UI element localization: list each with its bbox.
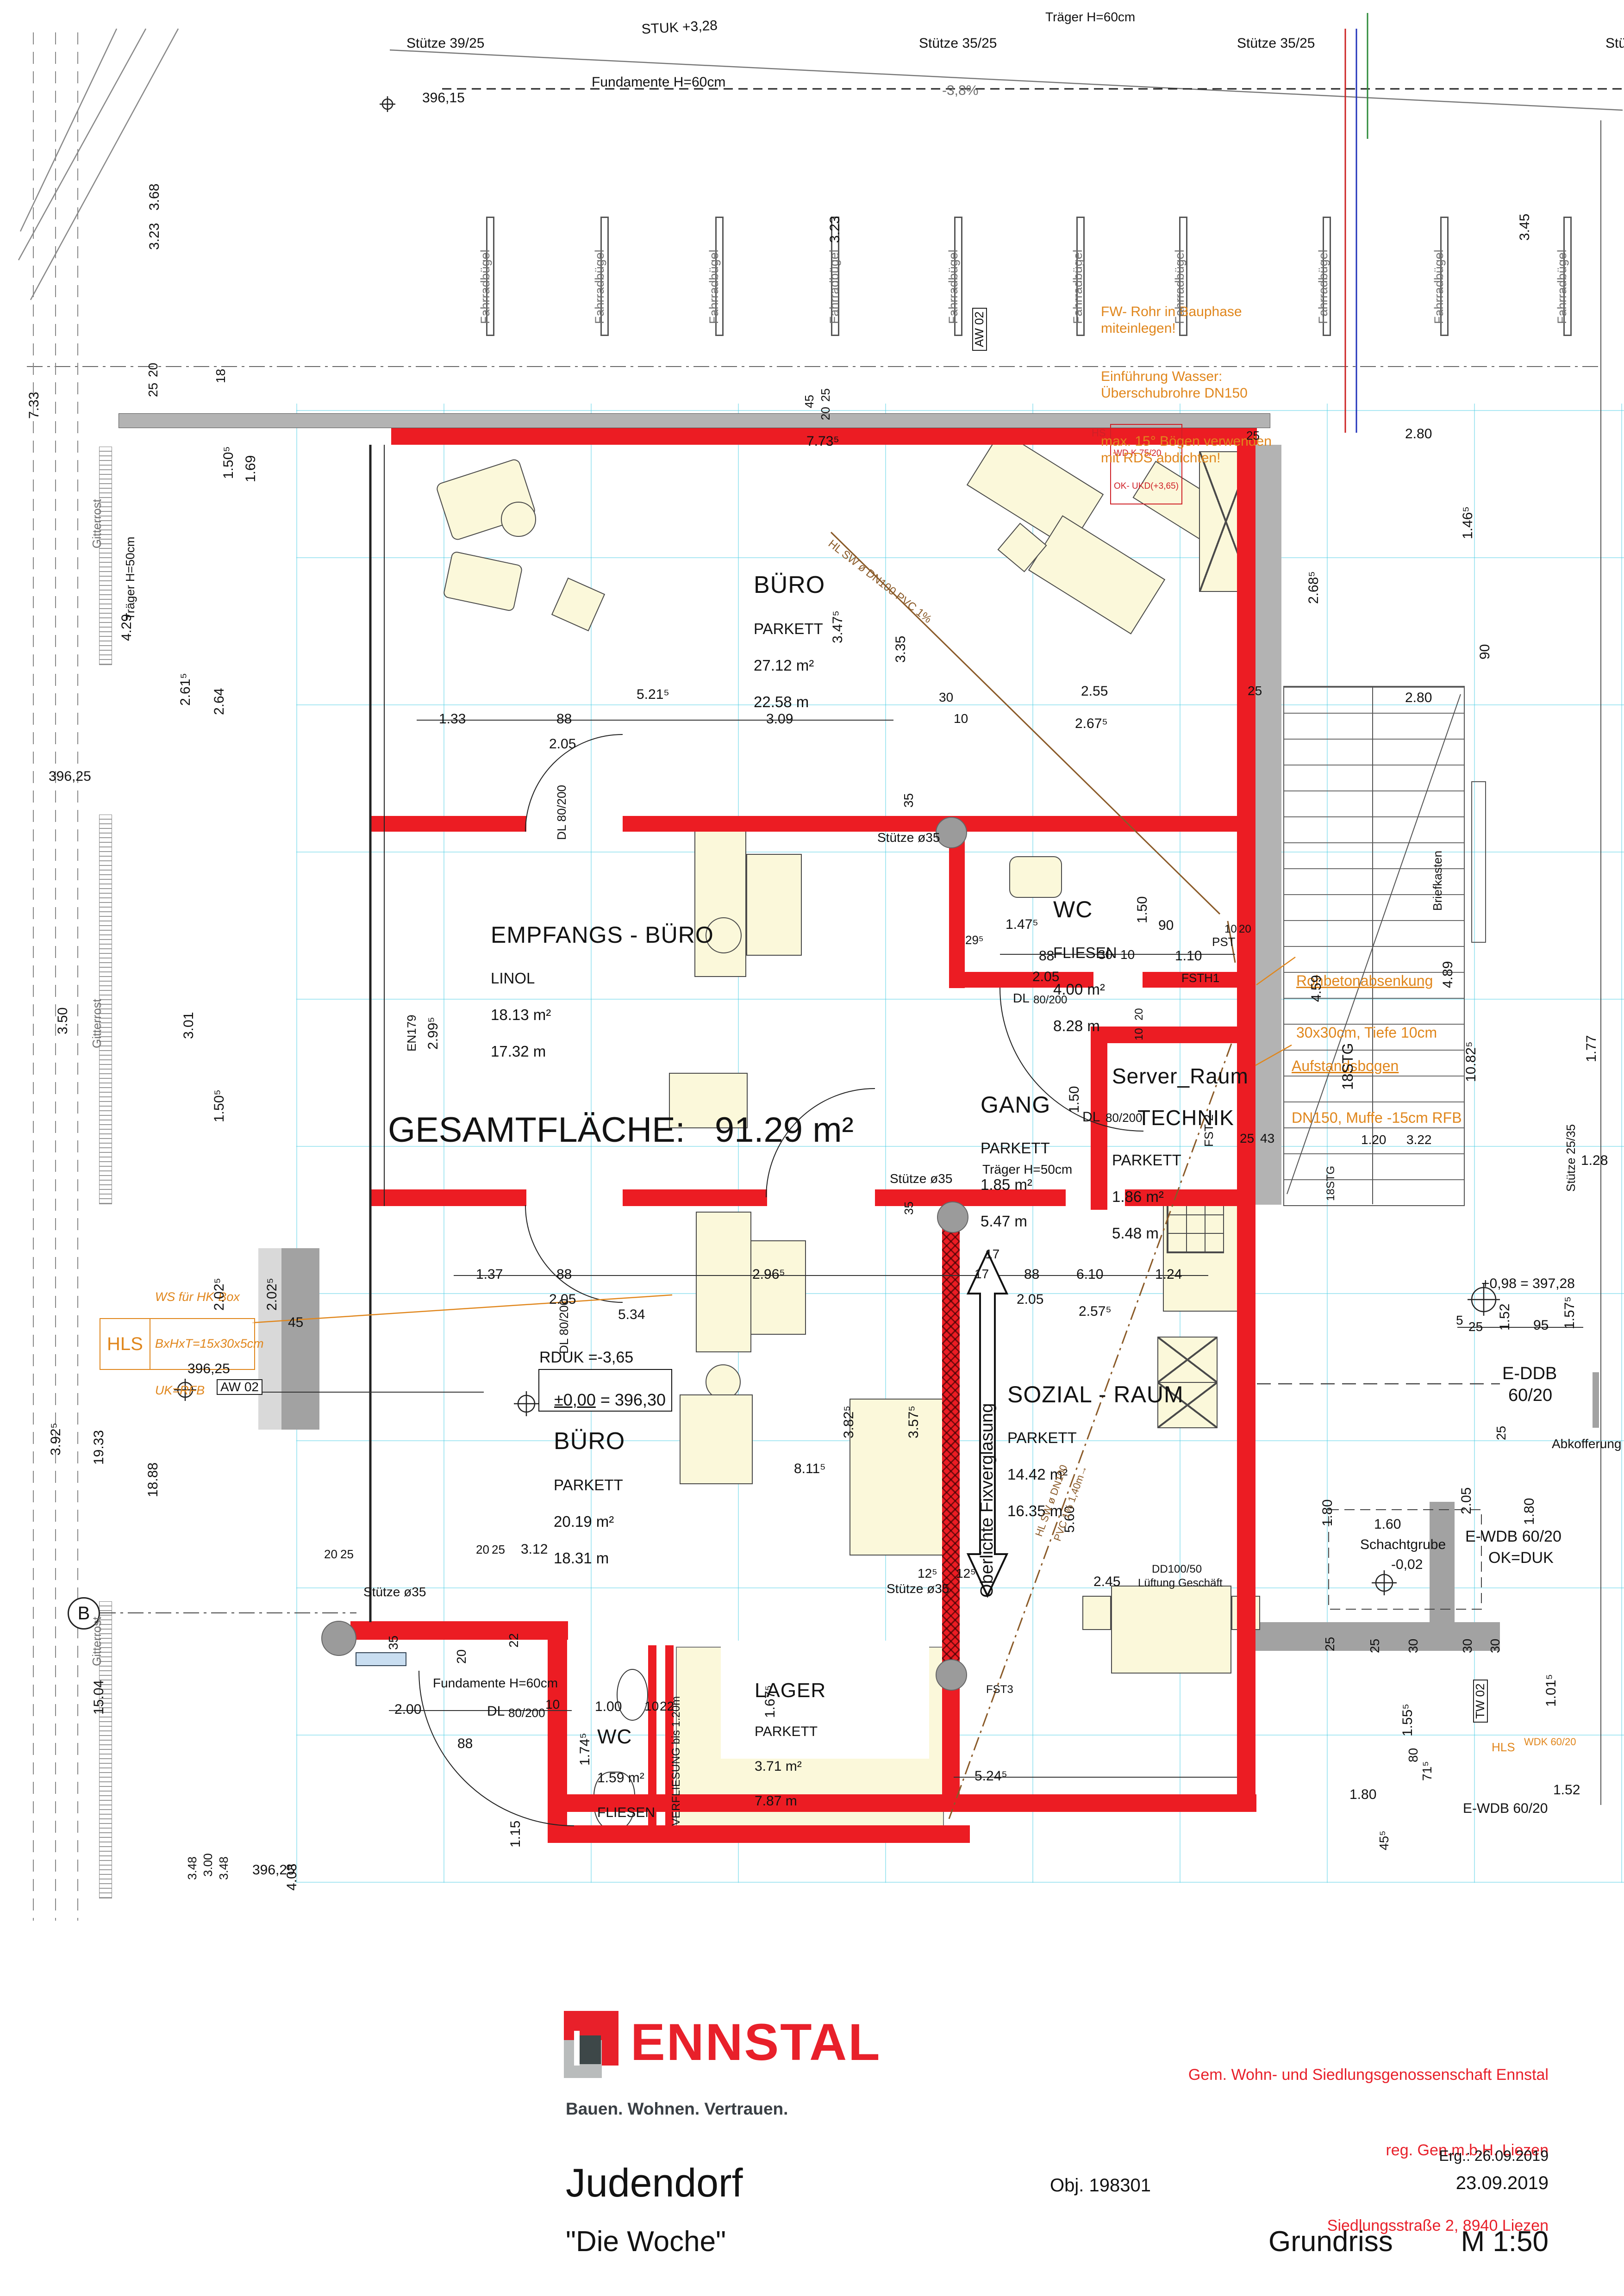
brand-wordmark: ENNSTAL <box>631 2012 881 2072</box>
plan-label: EN179 <box>406 1015 418 1052</box>
plan-label: 1.10 <box>1175 949 1202 964</box>
plan-label: 15.04 <box>92 1680 106 1715</box>
plan-label: 80/200 <box>508 1707 545 1720</box>
room-label-gang: GANG PARKETT 1.85 m² 5.47 m <box>981 1075 1050 1240</box>
plan-label: +0,98 = 397,28 <box>1481 1276 1575 1291</box>
plan-label: Stütze ø35 <box>890 1172 952 1186</box>
plan-label: Stütze ø35 <box>887 1582 949 1596</box>
plan-label: 2.02⁵ <box>265 1278 280 1311</box>
plan-label: 30 <box>939 691 953 704</box>
plan-label: 5.21⁵ <box>637 687 669 702</box>
plan-label: 45⁵ <box>1377 1830 1391 1850</box>
plan-label: 19.33 <box>92 1430 106 1465</box>
plan-label: 71⁵ <box>1420 1761 1434 1781</box>
plan-label: Stütze 35/25 <box>919 36 997 51</box>
plan-label: 396,25 <box>252 1863 295 1878</box>
plan-label: FST 2 <box>1203 1114 1216 1147</box>
plan-label: 3.47⁵ <box>831 610 845 643</box>
floorplan-sheet: { "colors":{"wall_red":"#ec1c23","concre… <box>0 0 1624 2296</box>
plan-label: 25 <box>492 1543 505 1556</box>
plan-label: DL <box>1013 991 1030 1005</box>
plan-label: 10 <box>1224 923 1237 935</box>
plan-label: 10 <box>644 1699 659 1713</box>
plan-label: -0,02 <box>1391 1557 1423 1572</box>
plan-label: Gitterrost <box>91 999 104 1048</box>
plan-label: FST3 <box>986 1684 1013 1695</box>
plan-label: 1.80 <box>1320 1500 1335 1526</box>
plan-label: 1.77 <box>1584 1035 1599 1062</box>
plan-label: 396,25 <box>49 769 91 784</box>
plan-label: DD100/50 <box>1152 1563 1202 1575</box>
plan-label: 25 <box>1323 1637 1337 1651</box>
plan-label: 2.05 <box>1017 1292 1043 1307</box>
plan-label: 2.05 <box>1032 970 1059 984</box>
plan-label: 1.50⁵ <box>221 446 236 479</box>
plan-label: 1.69 <box>244 455 258 482</box>
plan-label: 30 <box>1406 1639 1420 1653</box>
plan-label: 1.15 <box>508 1821 523 1848</box>
room-label-wc-bottom: WC 1.59 m² FLIESEN <box>597 1709 655 1830</box>
plan-label: 25 <box>1494 1426 1508 1440</box>
plan-label: 18STG <box>1325 1166 1337 1201</box>
plan-label: 4.59 <box>1309 975 1324 1002</box>
plan-label: DL 80/200 <box>558 1299 571 1354</box>
plan-label: 20 <box>1239 923 1251 935</box>
plan-label: Fundamente H=60cm <box>592 75 725 90</box>
plan-label: 5.34 <box>618 1307 645 1322</box>
plan-label: -3,8% <box>942 83 978 98</box>
plan-label: 88 <box>556 712 572 727</box>
plan-label: 3.22 <box>1406 1133 1432 1147</box>
plan-label: Fahrradbügel <box>1173 249 1187 324</box>
oberlichte-label: Oberlichte Fixverglasung <box>978 1403 996 1598</box>
room-label-empfang: EMPFANGS - BÜRO LINOL 18.13 m² 17.32 m <box>491 905 714 1070</box>
plan-label: Träger H=50cm <box>124 537 137 620</box>
plan-label: 2.80 <box>1405 427 1432 442</box>
plan-label: 17 <box>974 1267 989 1281</box>
plan-label: FSTH1 <box>1181 972 1219 985</box>
plan-label: 2.80 <box>1405 691 1432 705</box>
room-label-server: Server_Raum TECHNIK PARKETT 1.86 m² 5.48… <box>1112 1047 1249 1252</box>
drawing-scale: M 1:50 <box>1178 2225 1549 2258</box>
plan-label: 2.96⁵ <box>752 1267 785 1282</box>
plan-label: 25 <box>1240 1132 1254 1145</box>
plan-label: 1.80 <box>1522 1498 1537 1525</box>
plan-label: DL 80/200 <box>556 785 568 840</box>
plan-label: 95 <box>1533 1318 1549 1333</box>
plan-label: 3.12 <box>521 1542 548 1557</box>
plan-label: 88 <box>457 1736 473 1751</box>
plan-label: 3.45 <box>1518 214 1532 241</box>
plan-label: 20 <box>455 1649 468 1664</box>
plan-label: 396,15 <box>422 91 465 106</box>
plan-label: Schachtgrube <box>1360 1537 1446 1552</box>
plan-label: TW 02 <box>1473 1680 1488 1723</box>
plan-label: 1.46⁵ <box>1461 506 1475 539</box>
total-area-value: 91.29 m² <box>715 1110 854 1150</box>
plan-label: 3.48 <box>186 1856 199 1880</box>
plan-label: 1.67⁵ <box>763 1685 778 1718</box>
plan-label: Fahrradbügel <box>947 249 960 324</box>
plan-label: Gitterrost <box>91 499 104 548</box>
plan-label: 1.37 <box>476 1267 503 1282</box>
plan-label: Fundamente H=60cm <box>433 1676 558 1690</box>
plan-label: Abkofferung <box>1552 1437 1622 1451</box>
object-number: Obj. 198301 <box>1050 2175 1151 2196</box>
plan-label: 1.80 <box>1349 1787 1376 1802</box>
total-area: GESAMTFLÄCHE: 91.29 m² <box>388 1110 854 1150</box>
plan-label: 35 <box>902 793 916 808</box>
plan-label: 10 <box>954 712 968 726</box>
plan-label: 35 <box>903 1201 916 1215</box>
plan-label: Stütze 25/35 <box>1565 1124 1578 1192</box>
plan-label: 12⁵ <box>918 1567 937 1580</box>
plan-label: Träger H=60cm <box>1045 10 1135 24</box>
aw02-box: AW 02 <box>217 1379 262 1395</box>
plan-label: 3.35 <box>893 636 908 663</box>
plan-label: 45 <box>803 395 816 408</box>
plan-label: 17 <box>985 1247 999 1261</box>
plan-label: 1.52 <box>1498 1304 1512 1331</box>
plan-label: 3.01 <box>181 1012 196 1039</box>
note-aufstandsbogen: Aufstandsbogen DN150, Muffe -15cm RFB <box>1292 1023 1462 1144</box>
plan-label: 88 <box>556 1267 572 1282</box>
plan-label: 1.00 <box>595 1699 622 1714</box>
plan-label: E-WDB 60/20 <box>1463 1801 1548 1816</box>
plan-label: 3.82⁵ <box>842 1406 856 1438</box>
plan-label: 4.89 <box>1441 961 1455 988</box>
plan-label: Stütze 39/25 <box>406 36 484 51</box>
plan-label: Fahrradbügel <box>828 249 841 324</box>
plan-label: 3.23 <box>147 223 162 250</box>
plan-label: 22 <box>507 1633 521 1648</box>
plan-label: Stütze ø35 <box>877 831 940 845</box>
plan-label: E-DDB <box>1502 1364 1557 1383</box>
plan-label: VERFLIESUNG bis 1.20m <box>670 1696 682 1826</box>
project-title: Judendorf <box>566 2160 743 2206</box>
plan-label: 1.50 <box>1067 1086 1082 1113</box>
plan-label: Fahrradbügel <box>707 249 721 324</box>
plan-label: 29⁵ <box>965 934 984 947</box>
plan-label: 88 <box>1024 1267 1039 1282</box>
total-area-label: GESAMTFLÄCHE: <box>388 1110 685 1150</box>
room-label-wc-top: WC FLIESEN 4.00 m² 8.28 m <box>1053 879 1117 1045</box>
plan-label: 18 <box>214 369 228 383</box>
plan-label: 1.47⁵ <box>1006 917 1038 932</box>
plan-label: 3.50 <box>56 1008 70 1034</box>
project-subtitle: "Die Woche" <box>566 2225 726 2258</box>
plan-label: 43 <box>1260 1132 1274 1145</box>
plan-label: Stütz <box>1605 36 1624 51</box>
plan-label: 2.45 <box>1093 1574 1120 1589</box>
plan-label: 1.28 <box>1581 1153 1608 1168</box>
plan-date: 23.09.2019 <box>1178 2173 1549 2194</box>
room-label-buero-top: BÜRO PARKETT 27.12 m² 22.58 m <box>754 554 825 721</box>
plan-label: DL <box>487 1704 505 1719</box>
plan-label: Träger H=50cm <box>982 1163 1072 1176</box>
plan-label: 1.52 <box>1553 1783 1580 1798</box>
plan-label: 25 <box>146 383 160 397</box>
plan-label: PST <box>1212 936 1236 949</box>
plan-label: 25 <box>1246 429 1260 442</box>
plan-label: 1.60 <box>1374 1517 1401 1532</box>
plan-label: Fahrradbügel <box>479 249 492 324</box>
plan-label: 10 <box>1120 948 1135 962</box>
note-hk-box: HLS WS für HK-Box BxHxT=15x30x5cm UK=RFB <box>100 1318 255 1370</box>
plan-label: 20 <box>146 363 160 377</box>
plan-label: 90 <box>1158 918 1174 933</box>
plan-label: 20 <box>324 1548 337 1561</box>
plan-label: 2.61⁵ <box>178 673 193 706</box>
plan-label: 80/200 <box>1033 994 1067 1006</box>
plan-label: 5.24⁵ <box>974 1769 1007 1784</box>
plan-label: 2.05 <box>549 737 576 752</box>
room-label-sozial: SOZIAL - RAUM PARKETT 14.42 m² 16.35 m <box>1007 1364 1184 1530</box>
plan-label: 2.02⁵ <box>212 1278 227 1311</box>
plan-label: 5 <box>1456 1313 1463 1327</box>
plan-label: 10 <box>545 1698 560 1711</box>
plan-label: E-WDB 60/20 <box>1465 1528 1562 1545</box>
plan-label: 60/20 <box>1508 1386 1552 1405</box>
plan-label: 1.24 <box>1155 1267 1182 1282</box>
plan-label: 2.99⁵ <box>426 1017 441 1050</box>
plan-label: Stütze 35/25 <box>1237 36 1315 51</box>
room-label-buero-bottom: BÜRO PARKETT 20.19 m² 18.31 m <box>554 1411 625 1577</box>
plan-label: 20 <box>1133 1008 1145 1020</box>
plan-label: 6.10 <box>1076 1267 1103 1282</box>
plan-label: 2.57⁵ <box>1079 1304 1112 1319</box>
plan-label: 1.74⁵ <box>578 1733 593 1766</box>
plan-label: RDUK =-3,65 <box>539 1349 633 1366</box>
plan-label: 396,25 <box>187 1362 230 1376</box>
plan-label: 1.50⁵ <box>212 1089 227 1122</box>
plan-label: 18.88 <box>146 1462 161 1497</box>
revision-date: Erg.: 26.09.2019 <box>1178 2147 1549 2165</box>
plan-label: 1.01⁵ <box>1544 1674 1559 1707</box>
plan-label: Fahrradbügel <box>1555 249 1569 324</box>
plan-label: DL <box>1082 1110 1100 1125</box>
plan-label: 45 <box>288 1315 303 1330</box>
plan-label: OK=DUK <box>1488 1549 1554 1566</box>
plan-label: 2.05 <box>1459 1487 1474 1514</box>
plan-label: Stütze ø35 <box>363 1585 426 1599</box>
plan-label: 80/200 <box>1106 1112 1143 1125</box>
plan-label: 3.92⁵ <box>49 1423 63 1456</box>
plan-label: 25 <box>1468 1320 1483 1334</box>
plan-label: 20 <box>819 407 832 420</box>
plan-label: 3.09 <box>766 712 793 727</box>
plan-label: 10.82⁵ <box>1464 1041 1479 1082</box>
plan-label: 25 <box>340 1548 354 1561</box>
plan-label: Fahrradbügel <box>1317 249 1330 324</box>
plan-label: Lüftung Geschäft <box>1138 1577 1223 1589</box>
plan-label: 1.33 <box>439 712 466 727</box>
ennstal-logo-notch <box>574 2031 580 2066</box>
plan-label: 1.50 <box>1135 896 1150 923</box>
plan-label: 25 <box>1368 1639 1382 1653</box>
plan-label: 1.57⁵ <box>1562 1296 1577 1329</box>
plan-label: 3.68 <box>147 184 162 211</box>
plan-label: 2.55 <box>1081 684 1108 699</box>
plan-label: AW 02 <box>972 308 987 351</box>
brand-tagline: Bauen. Wohnen. Vertrauen. <box>566 2099 788 2119</box>
plan-label: 30 <box>1098 948 1112 962</box>
plan-label: 1.20 <box>1361 1133 1387 1147</box>
ennstal-logo-dark <box>580 2035 601 2064</box>
plan-label: 1.55⁵ <box>1400 1704 1415 1736</box>
plan-label: 30 <box>1488 1639 1502 1653</box>
plan-label: Fahrradbügel <box>1071 249 1085 324</box>
plan-label: 3.23 <box>828 216 843 243</box>
plan-label: 2.68⁵ <box>1306 571 1321 604</box>
plan-label: 80 <box>1406 1748 1420 1762</box>
plan-label: 88 <box>1039 949 1054 964</box>
plan-label: 35 <box>387 1636 400 1650</box>
plan-label: 2.67⁵ <box>1075 716 1108 731</box>
plan-label: 12⁵ <box>956 1567 976 1580</box>
level-box: ±0,00 = 396,30 <box>538 1369 672 1412</box>
plan-label: Gitterrost <box>91 1617 104 1666</box>
plan-label: 25 <box>819 388 832 402</box>
plan-label: 8.11⁵ <box>794 1462 826 1476</box>
plan-label: Fahrradbügel <box>1432 249 1446 324</box>
plan-label: 10 <box>1133 1028 1145 1040</box>
plan-label: 18STG <box>1340 1043 1356 1090</box>
plan-label: Briefkasten <box>1431 851 1444 911</box>
plan-label: 2.00 <box>394 1702 421 1717</box>
plan-label: HLS <box>1492 1741 1515 1754</box>
plan-label: WDK 60/20 <box>1524 1736 1576 1747</box>
plan-label: 7.73⁵ <box>806 434 839 449</box>
plan-label: 20 <box>476 1543 489 1556</box>
plan-label: Fahrradbügel <box>593 249 606 324</box>
plan-label: 2.64 <box>212 688 227 715</box>
plan-label: 3.48 <box>218 1856 231 1880</box>
plan-label: 7.33 <box>27 392 42 419</box>
plan-label: 25 <box>1248 684 1262 698</box>
plan-label: 3.00 <box>202 1853 215 1877</box>
plan-label: 3.57⁵ <box>906 1406 921 1438</box>
plan-label: 30 <box>1461 1639 1474 1653</box>
plan-label: 90 <box>1478 644 1493 660</box>
